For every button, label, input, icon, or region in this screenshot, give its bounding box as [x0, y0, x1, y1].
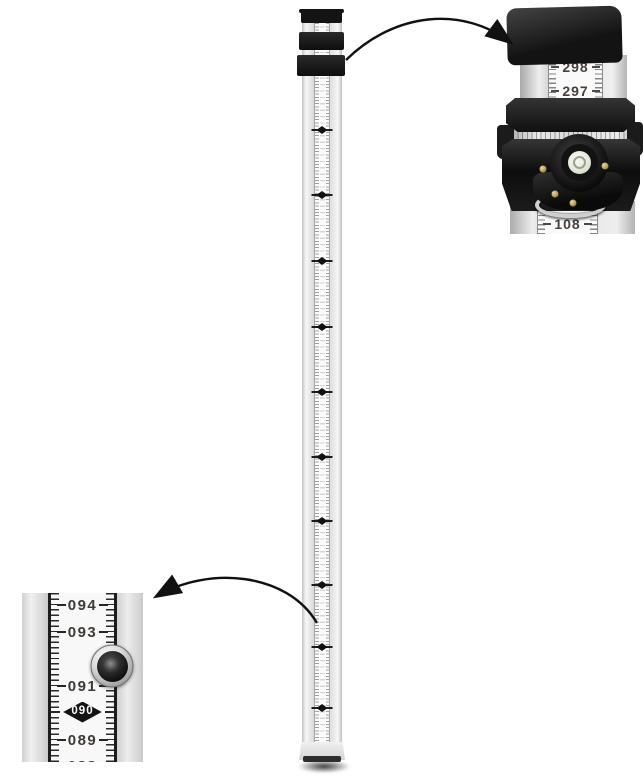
bubble-center-circle — [573, 156, 586, 169]
diamond-icon — [317, 581, 328, 589]
rod-diamond-marker — [312, 453, 333, 461]
scale-number: 093 — [68, 625, 98, 640]
tick-dash — [592, 90, 600, 92]
tick-dash — [57, 739, 66, 741]
scale-number-row: 088 — [51, 755, 114, 762]
scale-number: 108 — [554, 217, 580, 231]
rod-diamond-marker — [312, 581, 333, 589]
tick-dash — [551, 90, 559, 92]
scale-number: 088 — [68, 759, 98, 763]
tick-dash — [51, 711, 60, 713]
scale-diamond-row: 090 — [51, 701, 114, 723]
scale-detail-callout: 094093091090089088 — [22, 593, 143, 762]
lock-knob-core — [104, 658, 121, 675]
rod-clamp-band-lower — [297, 55, 345, 76]
scale-number-row: 093 — [51, 621, 114, 643]
scale-strip: 094093091090089088 — [48, 593, 117, 762]
scale-number-row: 297 — [549, 84, 602, 98]
tick-dash — [584, 223, 592, 225]
scale-number-row: 108 — [538, 217, 597, 231]
rod-clamp-band-upper — [299, 32, 344, 50]
diamond-icon — [317, 191, 328, 199]
brass-screw — [552, 191, 559, 198]
diamond-icon — [317, 257, 328, 265]
diamond-icon — [317, 126, 328, 134]
tick-dash — [543, 223, 551, 225]
scale-number-row: 089 — [51, 729, 114, 751]
diamond-icon — [317, 643, 328, 651]
tick-dash — [57, 685, 66, 687]
product-image: 298 297 108 — [0, 0, 643, 778]
diamond-icon — [317, 517, 328, 525]
rubber-top-cap — [506, 6, 622, 66]
rod-diamond-marker — [312, 704, 333, 712]
tick-dash — [99, 631, 108, 633]
tick-dash — [99, 739, 108, 741]
rod-foot — [303, 756, 341, 762]
scale-number: 091 — [68, 679, 98, 694]
diamond-icon — [317, 323, 328, 331]
rod-ground-shadow — [298, 761, 350, 773]
upper-clamp-collar — [506, 98, 635, 132]
tick-dash — [57, 604, 66, 606]
diamond-icon — [317, 704, 328, 712]
diamond-icon — [317, 388, 328, 396]
scale-number-row: 094 — [51, 594, 114, 616]
scale-number: 089 — [68, 733, 98, 748]
rod-diamond-marker — [312, 643, 333, 651]
decimeter-diamond-icon: 090 — [62, 702, 103, 723]
tick-dash — [99, 604, 108, 606]
rod-diamond-marker — [312, 517, 333, 525]
brass-screw — [570, 200, 577, 207]
top-detail-callout: 298 297 108 — [485, 3, 643, 235]
diamond-icon — [317, 453, 328, 461]
rod-diamond-marker — [312, 257, 333, 265]
tick-dash — [551, 66, 559, 68]
rod-diamond-marker — [312, 323, 333, 331]
curved-arrow-to-left-callout — [157, 578, 317, 623]
rod-diamond-marker — [312, 126, 333, 134]
scale-number: 297 — [562, 84, 588, 98]
tick-dash — [592, 66, 600, 68]
tick-dash — [105, 711, 114, 713]
rod-top-cap — [301, 9, 342, 23]
rod-diamond-marker — [312, 388, 333, 396]
lock-knob-ring — [97, 651, 128, 682]
scale-number: 094 — [68, 598, 98, 613]
rod-body — [302, 20, 342, 758]
diamond-number: 090 — [71, 706, 93, 718]
tick-dash — [57, 631, 66, 633]
brass-screw — [540, 166, 547, 173]
rod-diamond-marker — [312, 191, 333, 199]
aluminum-edge-left — [22, 593, 48, 762]
lock-knob — [91, 645, 134, 688]
brass-screw — [602, 163, 609, 170]
